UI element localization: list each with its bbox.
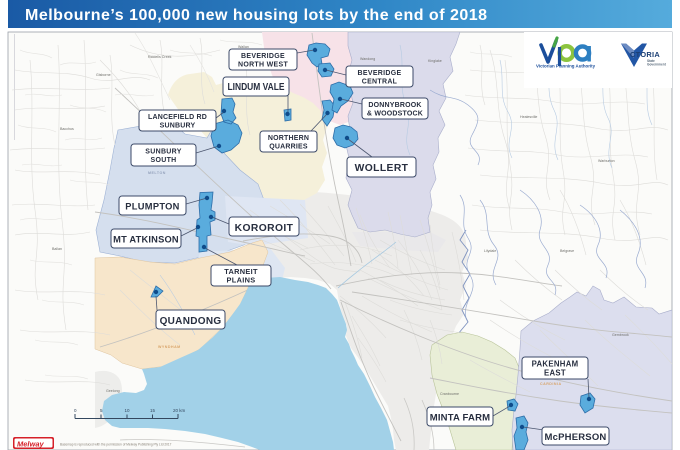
svg-text:CTORIA: CTORIA bbox=[630, 50, 660, 59]
svg-text:SUNBURY: SUNBURY bbox=[160, 123, 196, 130]
svg-text:Warburton: Warburton bbox=[598, 159, 615, 163]
svg-text:Victorian Planning Authority: Victorian Planning Authority bbox=[536, 64, 596, 69]
svg-text:Belgrave: Belgrave bbox=[560, 249, 574, 253]
svg-text:Ballan: Ballan bbox=[52, 247, 62, 251]
svg-text:Basemap is reproduced with the: Basemap is reproduced with the permissio… bbox=[60, 443, 172, 447]
svg-text:Geelong: Geelong bbox=[106, 389, 120, 393]
svg-text:MELTON: MELTON bbox=[148, 171, 166, 175]
svg-text:LINDUM VALE: LINDUM VALE bbox=[228, 82, 285, 93]
svg-text:Gisborne: Gisborne bbox=[96, 73, 111, 77]
svg-text:10: 10 bbox=[125, 408, 131, 413]
svg-text:QUARRIES: QUARRIES bbox=[269, 144, 308, 151]
svg-text:Wandong: Wandong bbox=[360, 57, 375, 61]
svg-text:& WOODSTOCK: & WOODSTOCK bbox=[367, 111, 423, 118]
svg-text:QUANDONG: QUANDONG bbox=[160, 316, 222, 327]
svg-text:Government: Government bbox=[647, 63, 667, 67]
svg-text:LANCEFIELD RD: LANCEFIELD RD bbox=[148, 114, 207, 121]
svg-text:Kinglake: Kinglake bbox=[428, 59, 442, 63]
svg-text:MINTA FARM: MINTA FARM bbox=[430, 413, 491, 424]
svg-text:WYNDHAM: WYNDHAM bbox=[158, 345, 181, 349]
svg-text:PAKENHAM: PAKENHAM bbox=[532, 360, 579, 369]
svg-text:EAST: EAST bbox=[544, 369, 566, 378]
svg-text:15: 15 bbox=[150, 408, 156, 413]
svg-text:Wallan: Wallan bbox=[238, 45, 249, 49]
svg-text:McPHERSON: McPHERSON bbox=[545, 432, 607, 443]
svg-text:BEVERIDGE: BEVERIDGE bbox=[241, 53, 285, 60]
svg-text:SOUTH: SOUTH bbox=[151, 157, 177, 164]
svg-text:20 km: 20 km bbox=[173, 408, 186, 413]
svg-text:BEVERIDGE: BEVERIDGE bbox=[358, 70, 402, 77]
svg-text:Bacchus: Bacchus bbox=[60, 127, 74, 131]
svg-text:WOLLERT: WOLLERT bbox=[355, 163, 409, 174]
svg-text:NORTH WEST: NORTH WEST bbox=[238, 62, 288, 69]
svg-text:KOROROIT: KOROROIT bbox=[235, 223, 294, 234]
svg-text:DONNYBROOK: DONNYBROOK bbox=[368, 102, 421, 109]
svg-text:Healesville: Healesville bbox=[520, 115, 537, 119]
svg-text:MT ATKINSON: MT ATKINSON bbox=[113, 235, 179, 245]
svg-text:Gembrook: Gembrook bbox=[612, 333, 629, 337]
svg-text:SUNBURY: SUNBURY bbox=[145, 149, 181, 156]
svg-text:Cranbourne: Cranbourne bbox=[440, 392, 459, 396]
svg-text:CARDINIA: CARDINIA bbox=[540, 382, 562, 386]
svg-text:PLUMPTON: PLUMPTON bbox=[125, 202, 179, 212]
svg-text:Riddells Creek: Riddells Creek bbox=[148, 55, 172, 59]
svg-text:Melway: Melway bbox=[17, 440, 45, 449]
svg-text:Melbourne’s 100,000 new housin: Melbourne’s 100,000 new housing lots by … bbox=[25, 7, 488, 24]
svg-text:NORTHERN: NORTHERN bbox=[268, 135, 309, 142]
svg-text:Lilydale: Lilydale bbox=[484, 249, 496, 253]
svg-text:PLAINS: PLAINS bbox=[227, 276, 256, 285]
svg-text:CENTRAL: CENTRAL bbox=[362, 79, 398, 86]
